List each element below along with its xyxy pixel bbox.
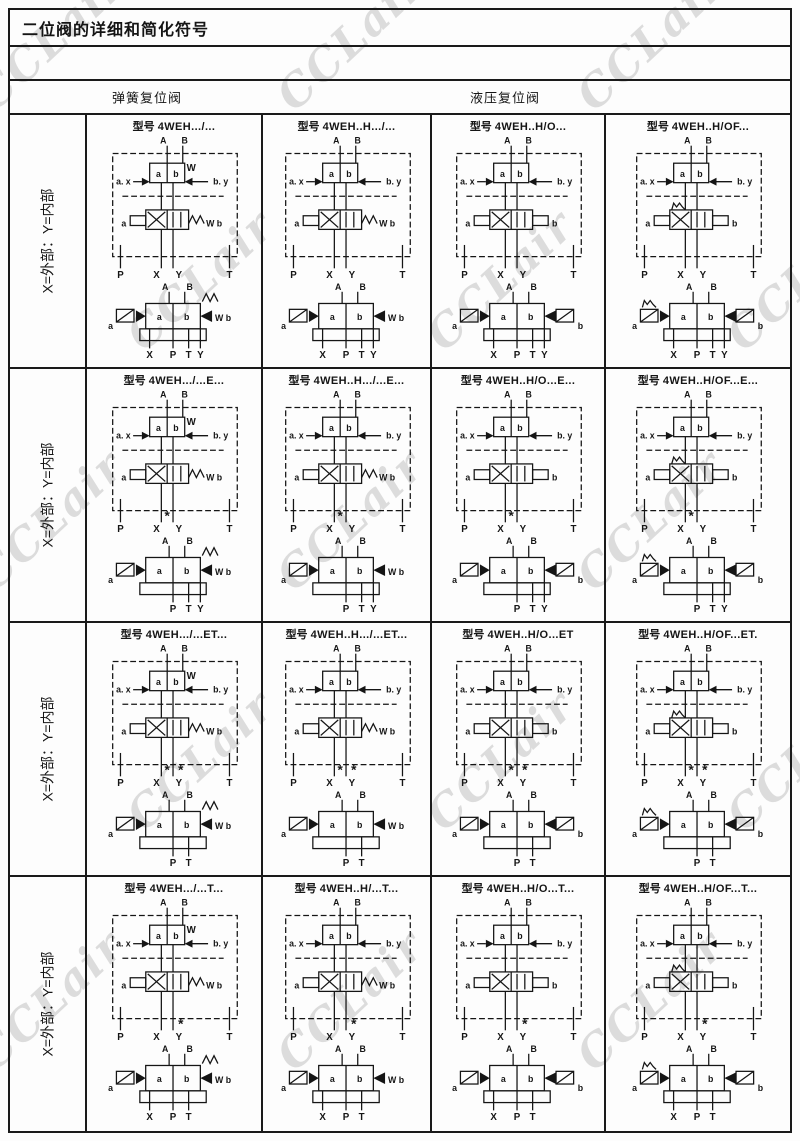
model-line: 型号 4WEH..H/...T... — [295, 880, 399, 896]
valve-cell: 型号 4WEH..H/OF...T... ABaba. xb. yabPXYT*… — [606, 877, 790, 1131]
svg-text:B: B — [359, 536, 365, 546]
valve-cell: 型号 4WEH..H/OF... ABaba. xb. yabPXYT abAB… — [606, 115, 790, 367]
svg-text:W b: W b — [206, 218, 222, 228]
svg-text:T: T — [571, 1032, 577, 1042]
svg-text:A: A — [333, 898, 340, 908]
svg-text:a. x: a. x — [640, 177, 655, 187]
svg-text:P: P — [694, 1112, 701, 1123]
svg-text:W b: W b — [206, 726, 222, 736]
svg-text:T: T — [227, 1032, 233, 1042]
svg-text:a: a — [681, 820, 686, 830]
svg-text:T: T — [571, 524, 577, 534]
svg-text:b: b — [708, 312, 713, 322]
model-code: 4WEH..H.../... — [323, 121, 396, 133]
svg-text:P: P — [514, 858, 521, 869]
svg-text:a: a — [500, 677, 505, 687]
row-label: X=外部：Y=内部 — [38, 188, 58, 293]
svg-text:a: a — [156, 677, 161, 687]
svg-text:b: b — [528, 1074, 533, 1084]
svg-text:P: P — [342, 1112, 349, 1123]
svg-text:T: T — [358, 858, 364, 869]
svg-text:B: B — [530, 536, 536, 546]
svg-text:a: a — [681, 566, 686, 576]
svg-text:B: B — [186, 790, 192, 800]
svg-text:b: b — [517, 931, 522, 941]
svg-text:a. x: a. x — [460, 685, 475, 695]
svg-text:a: a — [281, 829, 286, 839]
svg-text:P: P — [170, 604, 177, 615]
svg-text:B: B — [526, 136, 532, 146]
svg-text:P: P — [342, 858, 349, 869]
svg-text:X: X — [670, 350, 677, 361]
model-code: 4WEH..H/OF...T... — [664, 883, 758, 895]
svg-text:B: B — [710, 1044, 716, 1054]
svg-text:X: X — [677, 524, 684, 534]
svg-text:*: * — [337, 508, 343, 523]
svg-text:b. y: b. y — [213, 177, 228, 187]
svg-text:b: b — [346, 931, 351, 941]
svg-text:b: b — [173, 677, 178, 687]
svg-text:B: B — [526, 898, 532, 908]
svg-text:b: b — [173, 931, 178, 941]
model-line: 型号 4WEH..H.../...E... — [289, 372, 405, 388]
detailed-symbol-diagram: ABaba. xb. yaW bPXYT* — [266, 388, 428, 534]
svg-text:b: b — [184, 1074, 189, 1084]
svg-text:b: b — [732, 980, 737, 990]
svg-text:P: P — [170, 858, 177, 869]
row-label-cell: X=外部：Y=内部 — [10, 115, 87, 367]
model-code: 4WEH.../...ET... — [146, 629, 228, 641]
svg-text:X: X — [326, 1032, 333, 1042]
svg-text:b. y: b. y — [386, 939, 401, 949]
svg-text:W: W — [187, 671, 197, 682]
model-code: 4WEH..H/OF... — [672, 121, 749, 133]
svg-text:X: X — [153, 524, 160, 534]
svg-text:P: P — [461, 1032, 468, 1042]
svg-text:Y: Y — [541, 604, 548, 615]
svg-text:B: B — [530, 790, 536, 800]
svg-text:W b: W b — [215, 567, 231, 577]
svg-text:P: P — [290, 524, 297, 534]
svg-text:a: a — [632, 829, 637, 839]
svg-text:B: B — [182, 898, 188, 908]
simplified-symbol-diagram: abABabXPTY — [437, 280, 599, 366]
svg-text:b. y: b. y — [557, 939, 572, 949]
detailed-symbol-diagram: ABabWa. xb. yaW bPXYT** — [93, 642, 255, 788]
svg-text:P: P — [117, 778, 124, 788]
svg-text:a: a — [157, 820, 162, 830]
svg-text:B: B — [706, 898, 712, 908]
svg-text:a: a — [108, 321, 113, 331]
svg-text:T: T — [399, 270, 405, 280]
svg-text:T: T — [530, 858, 536, 869]
svg-text:a: a — [501, 820, 506, 830]
svg-text:b: b — [758, 321, 763, 331]
svg-text:a: a — [108, 575, 113, 585]
svg-text:X: X — [490, 1112, 497, 1123]
svg-text:a: a — [121, 980, 126, 990]
model-code: 4WEH..H/OF...ET. — [663, 629, 757, 641]
svg-text:Y: Y — [370, 350, 377, 361]
svg-text:*: * — [178, 1016, 184, 1031]
svg-text:b: b — [346, 169, 351, 179]
model-line: 型号 4WEH..H.../...ET... — [286, 626, 408, 642]
valve-cell: 型号 4WEH.../... ABabWa. xb. yaW bPXYT abA… — [87, 115, 263, 367]
svg-text:Y: Y — [176, 1032, 183, 1042]
svg-text:P: P — [461, 778, 468, 788]
svg-text:P: P — [170, 350, 177, 361]
svg-text:*: * — [351, 1016, 357, 1031]
svg-text:b: b — [697, 423, 702, 433]
svg-text:A: A — [504, 644, 511, 654]
svg-text:a: a — [632, 1083, 637, 1093]
svg-text:X: X — [146, 1112, 153, 1123]
svg-text:b: b — [697, 931, 702, 941]
row-label: X=外部：Y=内部 — [38, 951, 58, 1056]
model-line: 型号 4WEH..H/OF...E... — [638, 372, 759, 388]
svg-text:a: a — [500, 931, 505, 941]
svg-text:A: A — [504, 390, 511, 400]
svg-text:Y: Y — [197, 350, 204, 361]
svg-text:a. x: a. x — [460, 431, 475, 441]
svg-text:b. y: b. y — [737, 177, 752, 187]
model-line: 型号 4WEH..H/O...E... — [461, 372, 576, 388]
svg-text:T: T — [710, 350, 716, 361]
svg-text:T: T — [710, 1112, 716, 1123]
valve-cell: 型号 4WEH..H.../... ABaba. xb. yaW bPXYT a… — [263, 115, 432, 367]
svg-text:W b: W b — [215, 1075, 231, 1085]
svg-text:X: X — [497, 1032, 504, 1042]
svg-text:Y: Y — [348, 270, 355, 280]
svg-text:Y: Y — [520, 778, 527, 788]
svg-text:b: b — [552, 980, 557, 990]
svg-text:Y: Y — [197, 604, 204, 615]
svg-text:a: a — [645, 726, 650, 736]
svg-text:b: b — [758, 1083, 763, 1093]
svg-text:b. y: b. y — [737, 939, 752, 949]
model-prefix: 型号 — [462, 883, 484, 895]
svg-text:W b: W b — [388, 567, 404, 577]
svg-text:a: a — [121, 218, 126, 228]
svg-text:*: * — [165, 762, 171, 777]
svg-text:a: a — [680, 931, 685, 941]
svg-text:P: P — [514, 1112, 521, 1123]
svg-text:b: b — [578, 1083, 583, 1093]
model-code: 4WEH.../...T... — [150, 883, 224, 895]
svg-text:a: a — [632, 575, 637, 585]
svg-text:T: T — [751, 270, 757, 280]
svg-text:b: b — [184, 566, 189, 576]
svg-text:a: a — [465, 218, 470, 228]
svg-text:X: X — [146, 350, 153, 361]
valve-cell: 型号 4WEH..H.../...ET... ABaba. xb. yaW bP… — [263, 623, 432, 875]
svg-text:b. y: b. y — [557, 431, 572, 441]
svg-text:b. y: b. y — [213, 431, 228, 441]
model-line: 型号 4WEH..H/OF... — [647, 118, 749, 134]
svg-text:a: a — [294, 472, 299, 482]
svg-text:b: b — [517, 677, 522, 687]
svg-text:P: P — [170, 1112, 177, 1123]
model-line: 型号 4WEH..H/OF...T... — [639, 880, 758, 896]
detailed-symbol-diagram: ABaba. xb. yabPXYT** — [617, 642, 779, 788]
svg-text:b: b — [578, 829, 583, 839]
svg-text:a. x: a. x — [640, 431, 655, 441]
svg-text:T: T — [186, 604, 192, 615]
svg-text:a. x: a. x — [289, 431, 304, 441]
svg-text:B: B — [186, 1044, 192, 1054]
svg-text:A: A — [686, 790, 693, 800]
simplified-symbol-diagram: abABabPTY — [437, 534, 599, 620]
svg-text:a: a — [329, 566, 334, 576]
svg-text:a: a — [452, 829, 457, 839]
svg-text:b: b — [732, 218, 737, 228]
svg-text:a: a — [500, 169, 505, 179]
simplified-symbol-diagram: abABabPT — [437, 788, 599, 874]
svg-text:B: B — [354, 898, 360, 908]
simplified-symbol-diagram: abABaW bXPT — [266, 1042, 428, 1128]
svg-text:b: b — [357, 1074, 362, 1084]
simplified-symbol-diagram: abABaW bPT — [93, 788, 255, 874]
svg-text:a: a — [452, 1083, 457, 1093]
simplified-symbol-diagram: abABaW bXPT — [93, 1042, 255, 1128]
svg-text:T: T — [530, 350, 536, 361]
svg-text:A: A — [686, 282, 693, 292]
svg-text:Y: Y — [721, 350, 728, 361]
svg-text:A: A — [333, 390, 340, 400]
svg-text:b: b — [758, 829, 763, 839]
svg-text:a: a — [680, 677, 685, 687]
svg-text:a: a — [500, 423, 505, 433]
svg-text:a: a — [121, 726, 126, 736]
model-code: 4WEH..H/OF...E... — [663, 375, 758, 387]
svg-text:a: a — [681, 312, 686, 322]
simplified-symbol-diagram: abABaW bPT — [266, 788, 428, 874]
svg-text:*: * — [689, 508, 695, 523]
detailed-symbol-diagram: ABaba. xb. yabPXYT — [437, 134, 599, 280]
svg-text:a. x: a. x — [289, 177, 304, 187]
svg-text:Y: Y — [721, 604, 728, 615]
svg-text:a. x: a. x — [116, 177, 131, 187]
svg-text:B: B — [182, 644, 188, 654]
svg-text:A: A — [335, 790, 342, 800]
svg-text:Y: Y — [176, 778, 183, 788]
svg-text:P: P — [461, 524, 468, 534]
svg-text:A: A — [506, 282, 513, 292]
svg-text:b: b — [758, 575, 763, 585]
svg-text:B: B — [359, 1044, 365, 1054]
svg-text:a: a — [157, 312, 162, 322]
svg-text:Y: Y — [348, 778, 355, 788]
svg-text:a: a — [681, 1074, 686, 1084]
svg-text:X: X — [153, 270, 160, 280]
svg-text:W b: W b — [388, 313, 404, 323]
svg-text:X: X — [153, 1032, 160, 1042]
svg-text:*: * — [702, 1016, 708, 1031]
svg-text:b: b — [708, 1074, 713, 1084]
model-prefix: 型号 — [133, 121, 155, 133]
svg-text:b: b — [184, 312, 189, 322]
simplified-symbol-diagram: abABabXPTY — [617, 280, 779, 366]
svg-text:B: B — [182, 136, 188, 146]
svg-text:a: a — [329, 312, 334, 322]
svg-text:a: a — [281, 1083, 286, 1093]
svg-text:T: T — [227, 270, 233, 280]
svg-text:T: T — [358, 1112, 364, 1123]
valve-cell: 型号 4WEH..H/O...ET ABaba. xb. yabPXYT** a… — [432, 623, 606, 875]
svg-text:b: b — [357, 820, 362, 830]
svg-text:a. x: a. x — [116, 939, 131, 949]
model-code: 4WEH..H/O...E... — [486, 375, 576, 387]
detailed-symbol-diagram: ABaba. xb. yabPXYT* — [617, 896, 779, 1042]
svg-text:*: * — [689, 762, 695, 777]
svg-text:X: X — [497, 778, 504, 788]
svg-text:*: * — [178, 762, 184, 777]
table-row: X=外部：Y=内部 型号 4WEH.../...T... ABabWa. xb.… — [10, 877, 790, 1131]
svg-text:a: a — [156, 423, 161, 433]
model-line: 型号 4WEH.../... — [133, 118, 216, 134]
svg-text:b: b — [708, 566, 713, 576]
model-code: 4WEH.../...E... — [149, 375, 225, 387]
svg-text:B: B — [182, 390, 188, 400]
svg-text:W: W — [187, 163, 197, 174]
model-prefix: 型号 — [638, 375, 660, 387]
model-prefix: 型号 — [462, 629, 484, 641]
valve-cell: 型号 4WEH.../...ET... ABabWa. xb. yaW bPXY… — [87, 623, 263, 875]
svg-text:a. x: a. x — [116, 431, 131, 441]
svg-text:a: a — [281, 321, 286, 331]
svg-text:W b: W b — [379, 980, 395, 990]
row-label-cell: X=外部：Y=内部 — [10, 369, 87, 621]
title-row: 二位阀的详细和简化符号 — [10, 10, 790, 47]
svg-text:Y: Y — [520, 1032, 527, 1042]
svg-text:W b: W b — [379, 218, 395, 228]
svg-text:b. y: b. y — [386, 685, 401, 695]
svg-text:X: X — [670, 1112, 677, 1123]
svg-text:X: X — [326, 524, 333, 534]
valve-cell: 型号 4WEH..H/O... ABaba. xb. yabPXYT abABa… — [432, 115, 606, 367]
svg-text:B: B — [186, 536, 192, 546]
model-code: 4WEH..H/O...T... — [487, 883, 575, 895]
valve-symbol-table: 二位阀的详细和简化符号 弹簧复位阀 液压复位阀 X=外部：Y=内部 型号 4WE… — [8, 8, 792, 1133]
svg-text:X: X — [326, 270, 333, 280]
valve-cell: 型号 4WEH..H/OF...E... ABaba. xb. yabPXYT*… — [606, 369, 790, 621]
svg-text:a. x: a. x — [116, 685, 131, 695]
svg-text:X: X — [326, 778, 333, 788]
svg-text:T: T — [571, 778, 577, 788]
table-row: X=外部：Y=内部 型号 4WEH.../...E... ABabWa. xb.… — [10, 369, 790, 623]
svg-text:b. y: b. y — [557, 177, 572, 187]
model-line: 型号 4WEH..H/OF...ET. — [638, 626, 757, 642]
svg-text:T: T — [186, 858, 192, 869]
svg-text:B: B — [526, 390, 532, 400]
svg-text:A: A — [162, 536, 169, 546]
simplified-symbol-diagram: abABabPTY — [617, 534, 779, 620]
svg-text:b: b — [173, 423, 178, 433]
detailed-symbol-diagram: ABabWa. xb. yaW bPXYT* — [93, 388, 255, 534]
svg-text:a: a — [157, 566, 162, 576]
svg-text:a: a — [108, 1083, 113, 1093]
svg-text:P: P — [290, 778, 297, 788]
svg-text:A: A — [333, 136, 340, 146]
valve-cell: 型号 4WEH..H/O...T... ABaba. xb. yabPXYT* … — [432, 877, 606, 1131]
svg-text:B: B — [706, 644, 712, 654]
svg-text:b: b — [578, 321, 583, 331]
svg-text:B: B — [359, 790, 365, 800]
svg-text:W b: W b — [215, 821, 231, 831]
table-row: X=外部：Y=内部 型号 4WEH.../...ET... ABabWa. xb… — [10, 623, 790, 877]
svg-text:A: A — [335, 282, 342, 292]
svg-text:B: B — [359, 282, 365, 292]
svg-text:X: X — [490, 350, 497, 361]
svg-text:a. x: a. x — [640, 685, 655, 695]
svg-text:a: a — [294, 726, 299, 736]
simplified-symbol-diagram: abABabXPT — [617, 1042, 779, 1128]
svg-text:T: T — [186, 1112, 192, 1123]
svg-text:A: A — [162, 282, 169, 292]
detailed-symbol-diagram: ABaba. xb. yaW bPXYT — [266, 134, 428, 280]
svg-text:a: a — [501, 1074, 506, 1084]
model-line: 型号 4WEH.../...E... — [124, 372, 225, 388]
svg-text:Y: Y — [520, 524, 527, 534]
model-prefix: 型号 — [286, 629, 308, 641]
svg-text:a: a — [465, 726, 470, 736]
svg-text:X: X — [153, 778, 160, 788]
svg-text:Y: Y — [700, 270, 707, 280]
svg-text:b: b — [346, 423, 351, 433]
svg-text:X: X — [677, 1032, 684, 1042]
model-prefix: 型号 — [461, 375, 483, 387]
model-code: 4WEH.../... — [158, 121, 216, 133]
svg-text:b: b — [173, 169, 178, 179]
valve-cell: 型号 4WEH..H/OF...ET. ABaba. xb. yabPXYT**… — [606, 623, 790, 875]
svg-text:P: P — [694, 604, 701, 615]
svg-text:T: T — [751, 524, 757, 534]
svg-text:a: a — [156, 169, 161, 179]
svg-text:B: B — [530, 1044, 536, 1054]
svg-text:*: * — [702, 762, 708, 777]
model-prefix: 型号 — [638, 629, 660, 641]
svg-text:A: A — [335, 536, 342, 546]
svg-text:T: T — [530, 1112, 536, 1123]
svg-text:a: a — [452, 575, 457, 585]
svg-text:P: P — [514, 350, 521, 361]
svg-text:A: A — [684, 390, 691, 400]
svg-text:a: a — [465, 472, 470, 482]
svg-text:a: a — [465, 980, 470, 990]
svg-text:B: B — [710, 536, 716, 546]
svg-text:B: B — [186, 282, 192, 292]
header-hydraulic-return-valve: 液压复位阀 — [470, 88, 540, 107]
model-line: 型号 4WEH..H/O...T... — [462, 880, 575, 896]
svg-text:a: a — [632, 321, 637, 331]
svg-text:Y: Y — [700, 778, 707, 788]
svg-text:b: b — [357, 566, 362, 576]
model-line: 型号 4WEH.../...T... — [125, 880, 224, 896]
svg-text:b. y: b. y — [737, 431, 752, 441]
svg-text:b. y: b. y — [557, 685, 572, 695]
svg-text:a. x: a. x — [640, 939, 655, 949]
svg-text:P: P — [694, 858, 701, 869]
svg-text:P: P — [117, 524, 124, 534]
simplified-symbol-diagram: abABabXPT — [437, 1042, 599, 1128]
svg-text:a: a — [329, 423, 334, 433]
svg-text:A: A — [160, 898, 167, 908]
svg-text:b. y: b. y — [386, 431, 401, 441]
valve-cell: 型号 4WEH..H/O...E... ABaba. xb. yabPXYT* … — [432, 369, 606, 621]
svg-text:T: T — [358, 350, 364, 361]
svg-text:b: b — [517, 169, 522, 179]
svg-text:A: A — [160, 136, 167, 146]
